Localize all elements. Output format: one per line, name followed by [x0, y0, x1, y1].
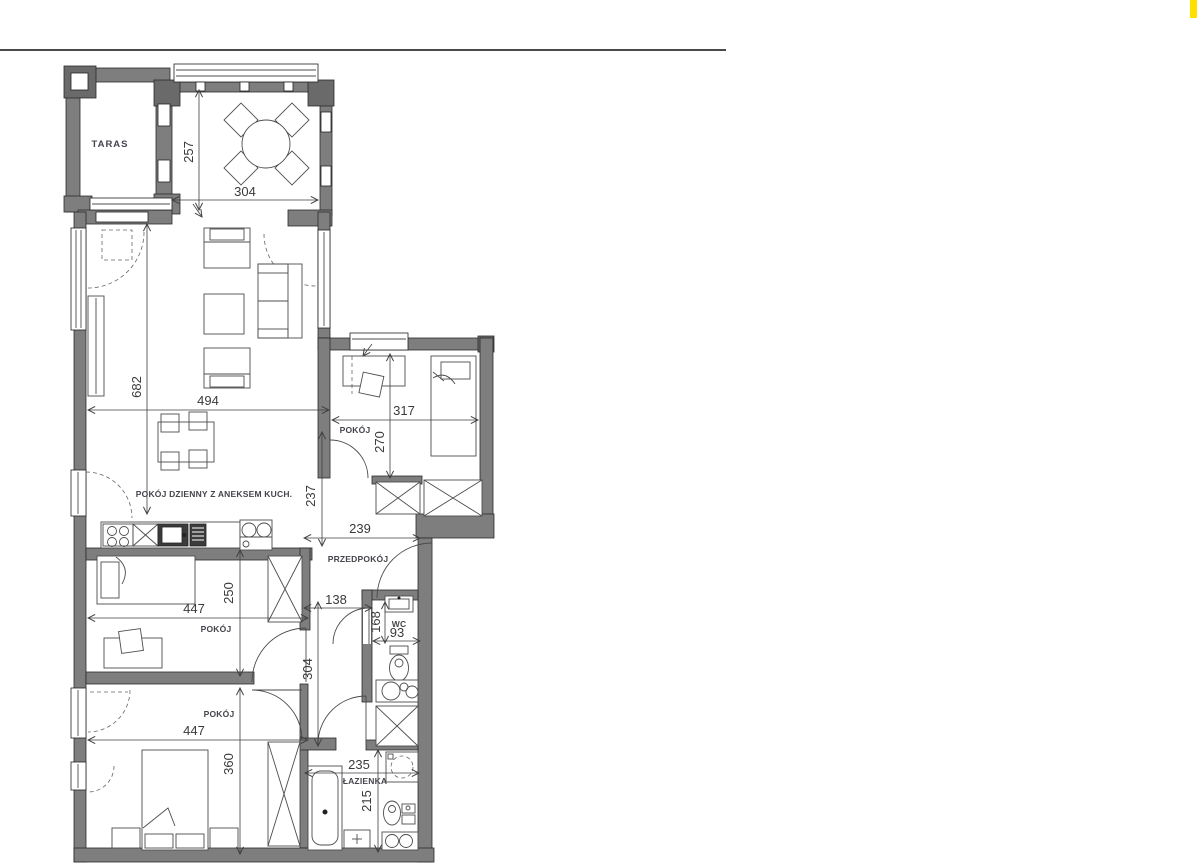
living-window [71, 228, 86, 330]
drainer [190, 524, 206, 546]
nightstand-2 [210, 828, 238, 848]
room-label-bathroom: ŁAZIENKA [343, 776, 388, 786]
washing-machine [386, 752, 418, 782]
kitchen-table [158, 412, 214, 470]
dining-round-table [224, 103, 309, 185]
wardrobe-3 [268, 556, 302, 622]
armchair-2 [204, 348, 250, 388]
balcony-door-window [71, 470, 86, 516]
bedroom-mid-bed [97, 556, 195, 604]
bedroom-top-door-arc [330, 440, 368, 478]
dim-bedroom-mid-w: 447 [183, 601, 205, 616]
dim-hall-w: 239 [349, 521, 371, 536]
room-label-hall: PRZEDPOKÓJ [328, 553, 389, 564]
bedroom-mid-door-arc [252, 628, 306, 682]
laundry-counter [376, 680, 418, 702]
bathtub [308, 766, 342, 850]
bedroom-window [71, 688, 86, 738]
dim-bedroom-top-h: 270 [372, 431, 387, 453]
room-label-bedroom-mid: POKÓJ [201, 623, 232, 634]
balcony-window [174, 64, 318, 82]
floor-plan: TARAS POKÓJ DZIENNY Z ANEKSEM KUCH. POKÓ… [0, 0, 1200, 868]
bedroom-bottom-bed [112, 750, 238, 850]
dim-bath-w: 235 [348, 757, 370, 772]
wardrobe-5 [376, 706, 418, 746]
dim-bedroom-top-w: 317 [393, 403, 415, 418]
bathroom-cabinet [344, 830, 370, 848]
wardrobe-4 [268, 742, 300, 846]
tv-sideboard [88, 296, 104, 396]
bedroom-window-2 [71, 762, 86, 790]
bedroom-mid-desk [104, 629, 162, 668]
bathroom-basin [382, 832, 418, 850]
room-label-bedroom-top: POKÓJ [340, 424, 371, 435]
dim-hall-h: 237 [303, 485, 318, 507]
dim-dining-h: 257 [181, 141, 196, 163]
sofa [258, 264, 302, 338]
dim-wc-h: 168 [368, 611, 383, 633]
bedroom-top-desk [343, 356, 405, 397]
kitchen-counter [101, 520, 272, 550]
bedroom-bottom-door-arc [252, 690, 302, 740]
coffee-table [204, 294, 244, 334]
wc-basin [385, 596, 413, 612]
room-label-living: POKÓJ DZIENNY Z ANEKSEM KUCH. [136, 488, 292, 499]
nightstand [112, 828, 140, 848]
dim-bedroom-bottom-w: 447 [183, 723, 205, 738]
armchair [204, 228, 250, 268]
dim-living-w: 494 [197, 393, 219, 408]
bathroom-toilet [384, 801, 416, 825]
dim-dining-w: 304 [234, 184, 256, 199]
bedroom-top-bed [431, 356, 476, 456]
dim-corridor-h: 304 [300, 658, 315, 680]
dim-corridor-w: 138 [325, 592, 347, 607]
dim-bath-h: 215 [359, 790, 374, 812]
wardrobe-2 [424, 480, 482, 516]
dim-living-h: 682 [129, 376, 144, 398]
wardrobe [376, 482, 420, 514]
page: TARAS POKÓJ DZIENNY Z ANEKSEM KUCH. POKÓ… [0, 0, 1200, 868]
dim-bedroom-mid-h: 250 [221, 582, 236, 604]
dim-bedroom-bottom-h: 360 [221, 753, 236, 775]
room-label-bedroom-bottom: POKÓJ [204, 708, 235, 719]
bedroom-top-window [350, 333, 408, 350]
bathroom-door-arc [318, 696, 366, 744]
room-label-taras: TARAS [91, 139, 128, 150]
dim-wc-w: 93 [390, 625, 404, 640]
